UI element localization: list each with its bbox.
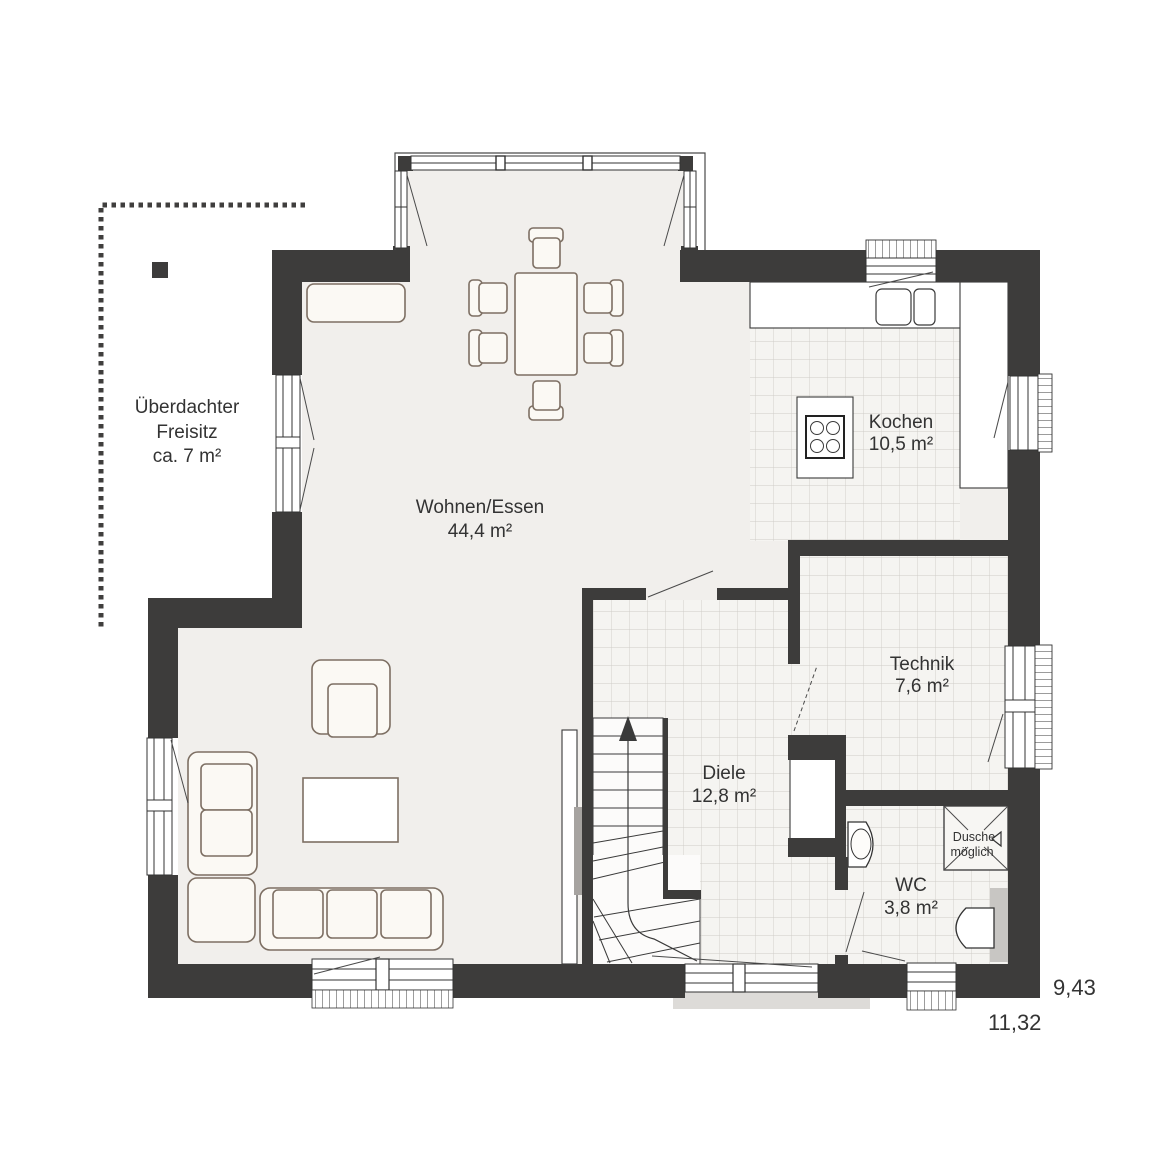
room-area-diele: 12,8 m² — [692, 786, 756, 807]
sideboard — [307, 284, 405, 322]
floor-plan-drawing: Überdachter Freisitz ca. 7 m² Wohnen/Ess… — [0, 0, 1151, 1158]
coffee-table — [303, 778, 398, 842]
room-area-wohnen: 44,4 m² — [448, 521, 512, 542]
room-label-freisitz-line3: ca. 7 m² — [153, 446, 222, 467]
room-area-kochen: 10,5 m² — [869, 434, 933, 455]
room-label-wc: WC — [895, 875, 927, 896]
room-label-kochen: Kochen — [869, 412, 933, 433]
floor-plan: Überdachter Freisitz ca. 7 m² Wohnen/Ess… — [0, 0, 1151, 1158]
washbasin — [848, 822, 873, 867]
window-bottom-living — [312, 957, 453, 1008]
dimension-depth: 9,43 — [1053, 975, 1096, 1000]
freisitz-post — [152, 262, 168, 278]
dimension-width: 11,32 — [988, 1010, 1041, 1035]
room-label-freisitz-line2: Freisitz — [156, 422, 217, 443]
room-label-technik: Technik — [890, 654, 955, 675]
window-kitchen-top — [866, 240, 936, 287]
bay-window-top — [411, 156, 680, 170]
room-label-wohnen: Wohnen/Essen — [416, 497, 545, 518]
ottoman — [188, 878, 255, 942]
kitchen-sink — [876, 289, 911, 325]
shower-note-line1: Dusche — [953, 830, 995, 844]
room-label-freisitz-line1: Überdachter — [135, 397, 240, 418]
kitchen-counter-right — [960, 282, 1008, 488]
room-area-wc: 3,8 m² — [884, 898, 938, 919]
room-area-technik: 7,6 m² — [895, 676, 949, 697]
dining-table — [515, 273, 577, 375]
room-label-diele: Diele — [702, 763, 745, 784]
kitchen-sink-drainer — [914, 289, 935, 325]
diele-niche-cupboard — [790, 759, 836, 839]
shower-note-line2: möglich — [950, 845, 993, 859]
